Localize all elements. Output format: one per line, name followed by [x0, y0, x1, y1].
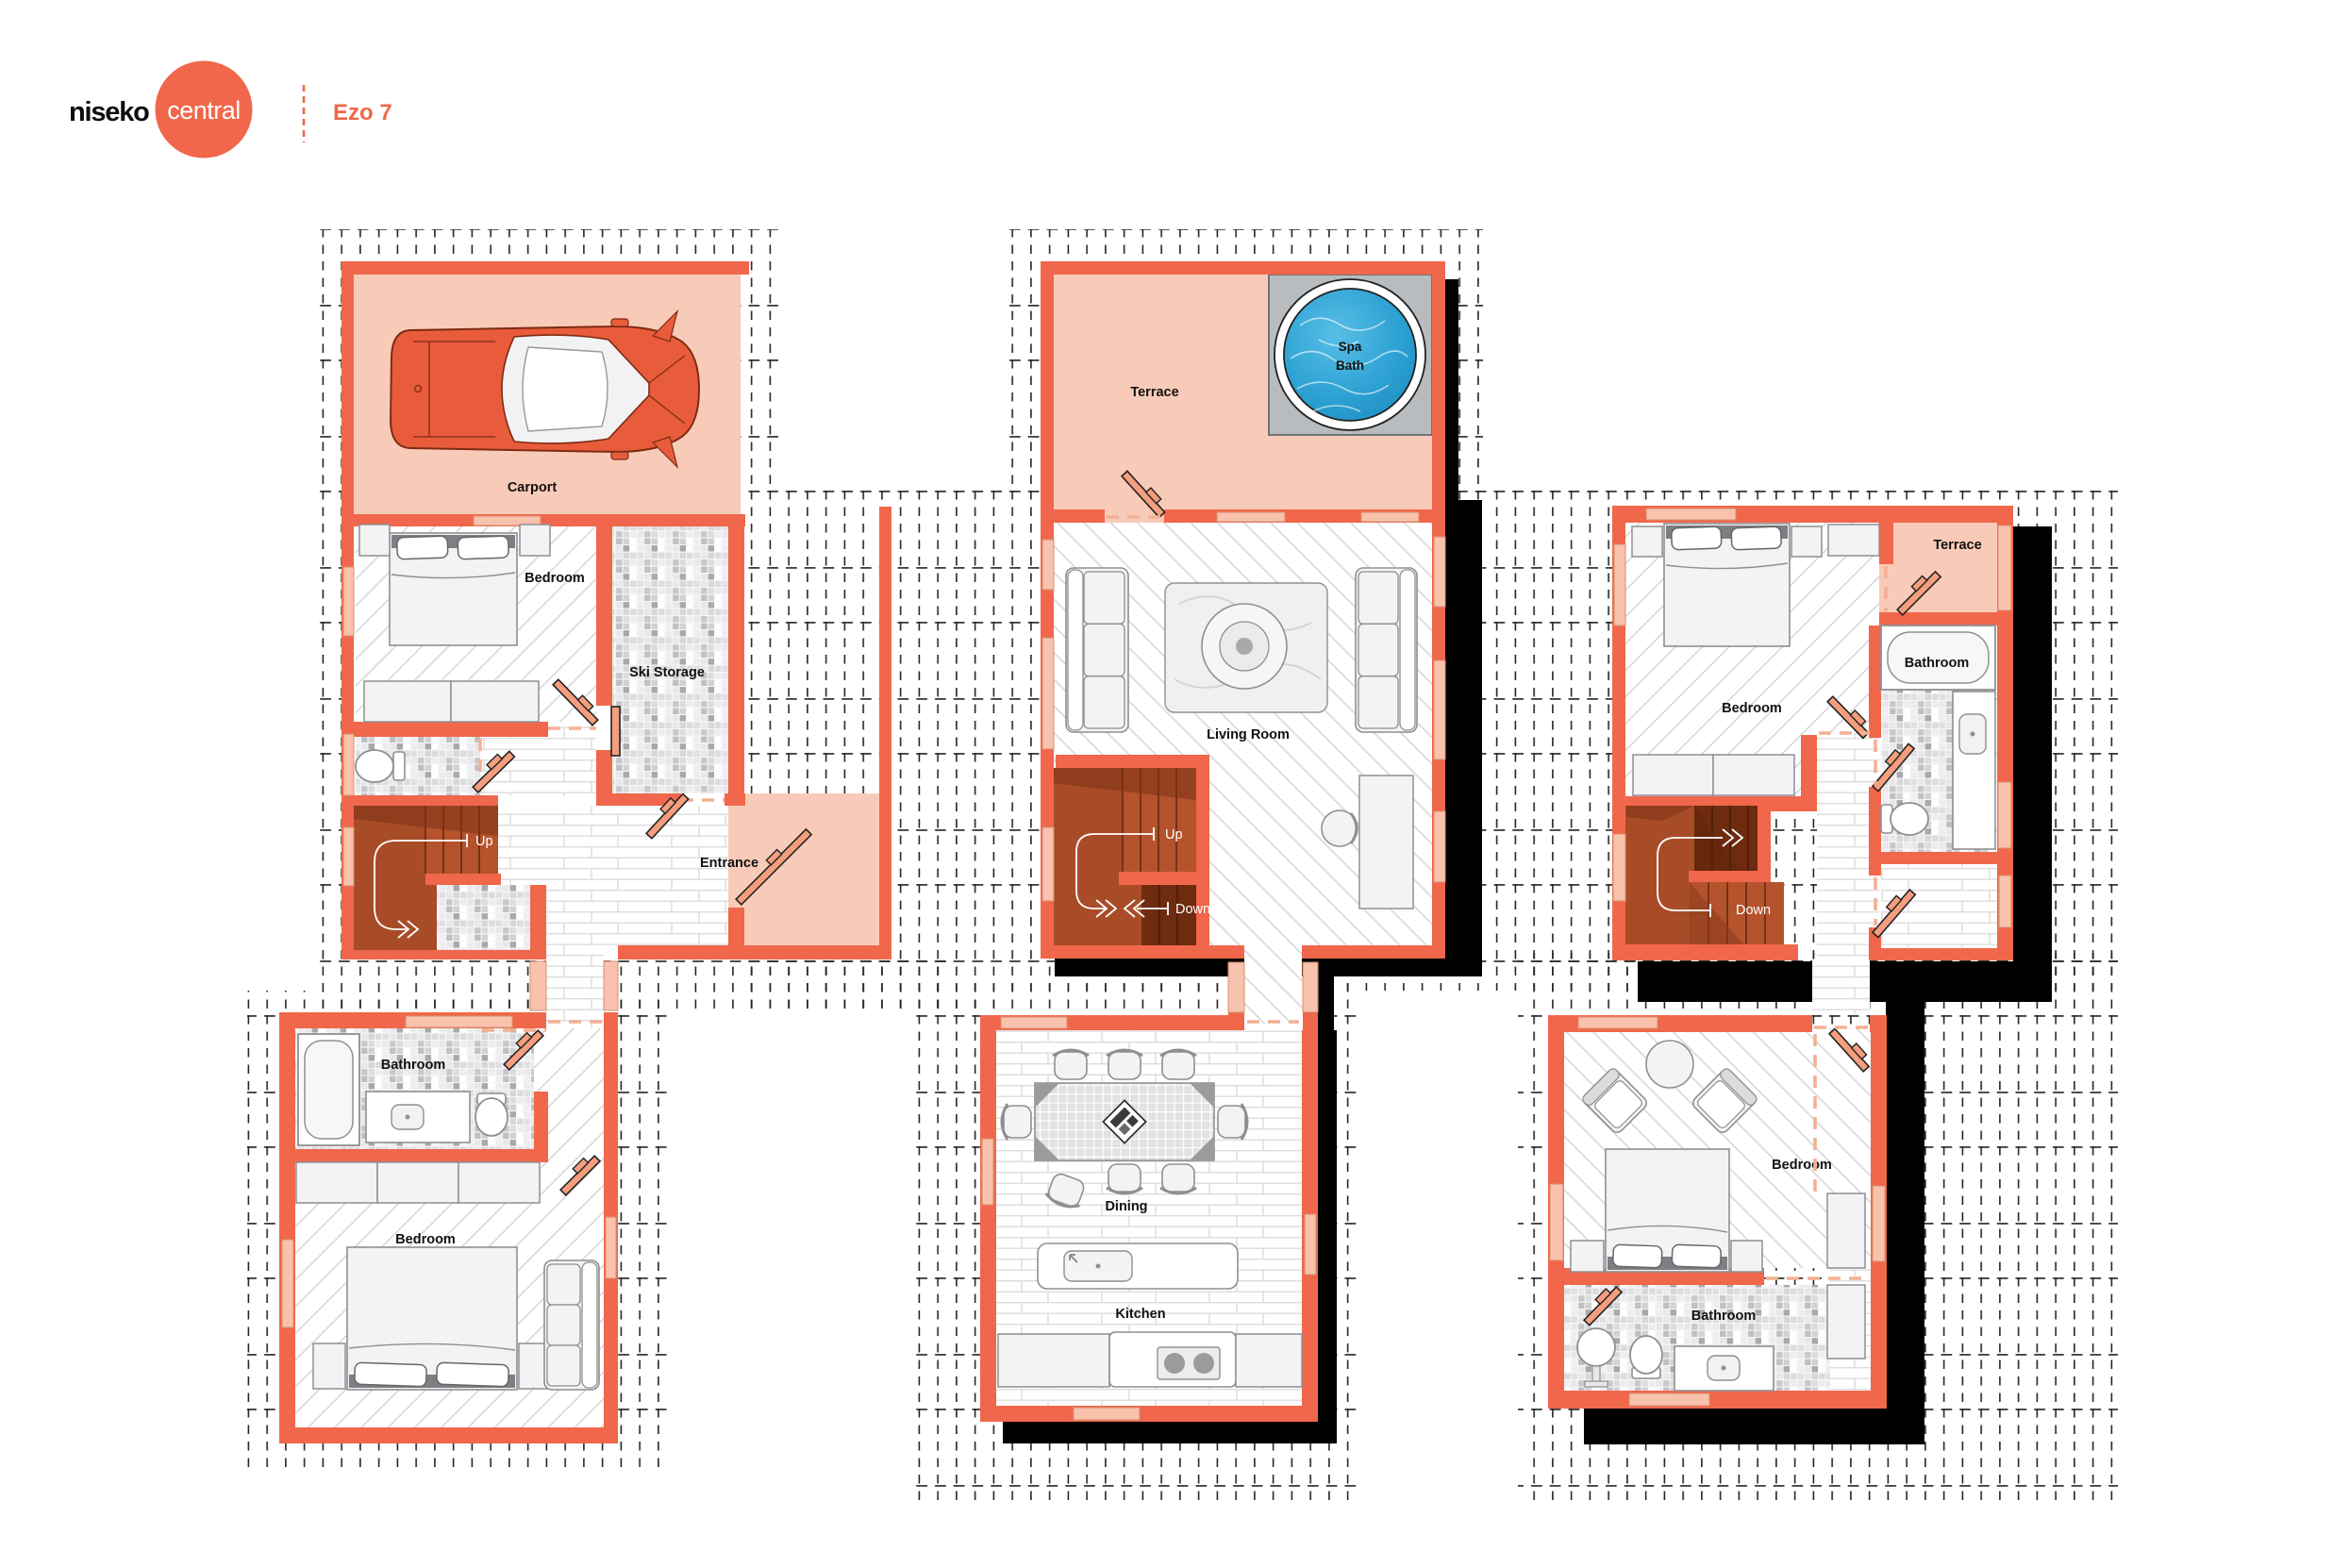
- svg-text:Down: Down: [1736, 903, 1771, 918]
- svg-text:Bedroom: Bedroom: [1722, 701, 1782, 716]
- svg-text:Carport: Carport: [508, 480, 558, 495]
- svg-text:Dining: Dining: [1105, 1199, 1147, 1214]
- svg-text:Up: Up: [475, 834, 493, 849]
- svg-text:Terrace: Terrace: [1130, 385, 1178, 400]
- svg-text:Bathroom: Bathroom: [1905, 656, 1969, 671]
- svg-text:Bathroom: Bathroom: [381, 1058, 445, 1073]
- svg-text:Bedroom: Bedroom: [395, 1232, 456, 1247]
- svg-text:Down: Down: [1175, 902, 1210, 917]
- svg-text:Ezo 7: Ezo 7: [333, 100, 392, 125]
- svg-text:Bedroom: Bedroom: [1772, 1158, 1832, 1173]
- svg-text:niseko: niseko: [69, 97, 149, 127]
- svg-text:Terrace: Terrace: [1933, 538, 1981, 553]
- svg-text:Bedroom: Bedroom: [525, 571, 585, 586]
- svg-text:Ski Storage: Ski Storage: [629, 665, 705, 680]
- svg-text:Up: Up: [1165, 827, 1183, 842]
- svg-text:Bath: Bath: [1336, 359, 1364, 373]
- svg-text:Living Room: Living Room: [1207, 727, 1290, 742]
- svg-text:Entrance: Entrance: [700, 856, 758, 871]
- svg-text:central: central: [167, 96, 241, 125]
- svg-text:Kitchen: Kitchen: [1115, 1307, 1165, 1322]
- svg-text:Spa: Spa: [1339, 340, 1362, 354]
- svg-text:Bathroom: Bathroom: [1691, 1309, 1756, 1324]
